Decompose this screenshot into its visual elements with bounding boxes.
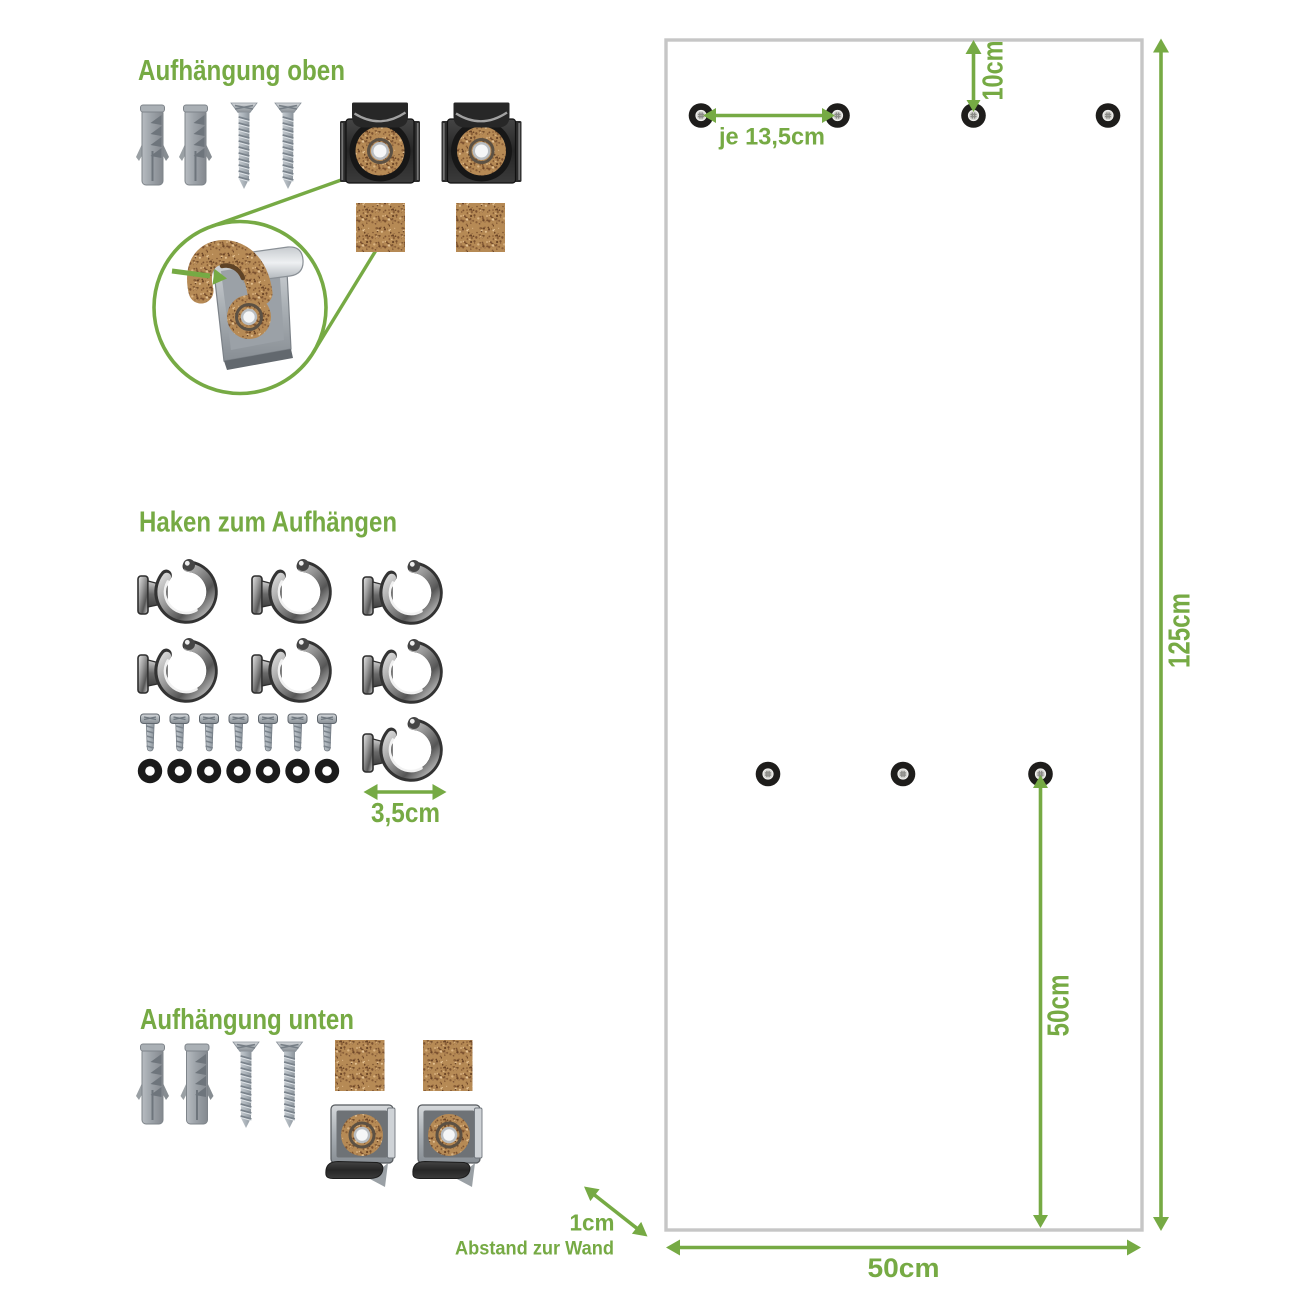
svg-text:Abstand zur Wand: Abstand zur Wand <box>455 1239 614 1260</box>
svg-text:je 13,5cm: je 13,5cm <box>718 124 825 151</box>
svg-text:Aufhängung unten: Aufhängung unten <box>140 1004 354 1036</box>
svg-text:125cm: 125cm <box>1162 593 1197 668</box>
svg-text:50cm: 50cm <box>1041 975 1076 1037</box>
svg-text:Aufhängung oben: Aufhängung oben <box>138 55 345 87</box>
svg-text:Haken zum Aufhängen: Haken zum Aufhängen <box>139 507 397 539</box>
svg-text:1cm: 1cm <box>570 1210 615 1236</box>
svg-text:50cm: 50cm <box>868 1253 940 1283</box>
svg-text:10cm: 10cm <box>978 41 1010 101</box>
svg-text:3,5cm: 3,5cm <box>371 797 440 828</box>
